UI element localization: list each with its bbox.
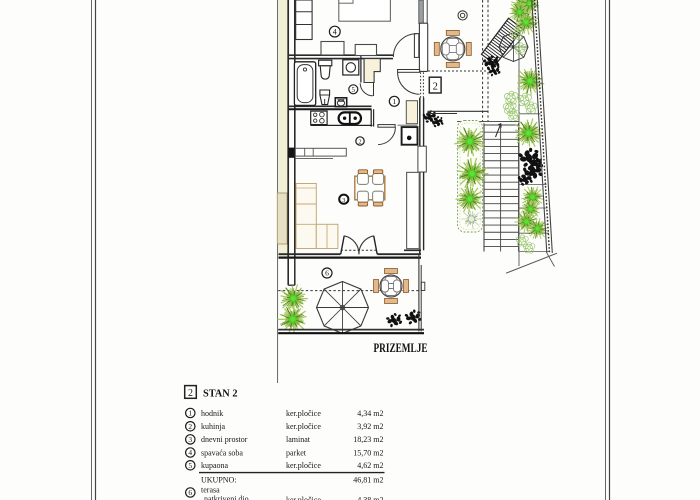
- svg-text:3,92 m2: 3,92 m2: [357, 422, 383, 431]
- svg-text:2: 2: [433, 81, 438, 92]
- svg-text:4,62 m2: 4,62 m2: [357, 461, 383, 470]
- svg-text:5: 5: [188, 461, 192, 470]
- svg-text:spavaća soba: spavaća soba: [201, 448, 243, 457]
- svg-text:laminat: laminat: [286, 435, 311, 444]
- svg-text:PRIZEMLJE: PRIZEMLJE: [374, 341, 428, 355]
- svg-text:dnevni prostor: dnevni prostor: [201, 435, 248, 444]
- svg-text:6: 6: [188, 488, 192, 497]
- svg-text:terasa: terasa: [201, 486, 220, 495]
- svg-text:3: 3: [342, 197, 345, 204]
- svg-text:1: 1: [392, 97, 396, 106]
- svg-text:natkriveni dio: natkriveni dio: [204, 495, 249, 500]
- svg-text:4: 4: [188, 448, 192, 457]
- svg-text:1: 1: [188, 409, 192, 418]
- svg-text:6: 6: [325, 269, 329, 278]
- svg-text:UKUPNO:: UKUPNO:: [201, 475, 237, 484]
- svg-text:18,23 m2: 18,23 m2: [353, 435, 383, 444]
- svg-text:2: 2: [358, 138, 361, 145]
- svg-text:2: 2: [188, 388, 193, 399]
- svg-text:4,38 m2: 4,38 m2: [357, 496, 383, 500]
- svg-text:4,34 m2: 4,34 m2: [357, 409, 383, 418]
- svg-text:ker.pločice: ker.pločice: [286, 422, 321, 431]
- svg-text:STAN 2: STAN 2: [203, 387, 238, 399]
- svg-text:ker.pločice: ker.pločice: [286, 461, 321, 470]
- svg-text:parket: parket: [286, 448, 307, 457]
- svg-text:ker.pločice: ker.pločice: [286, 409, 321, 418]
- svg-text:ker.pločice: ker.pločice: [286, 496, 321, 500]
- svg-text:kuhinja: kuhinja: [201, 422, 225, 431]
- svg-text:46,81 m2: 46,81 m2: [353, 475, 383, 484]
- svg-text:15,70 m2: 15,70 m2: [353, 448, 383, 457]
- svg-text:hodnik: hodnik: [201, 409, 223, 418]
- svg-text:4: 4: [333, 27, 337, 36]
- svg-text:kupaona: kupaona: [201, 461, 229, 470]
- svg-text:5: 5: [352, 86, 356, 94]
- svg-text:2: 2: [188, 422, 192, 431]
- svg-text:3: 3: [188, 435, 192, 444]
